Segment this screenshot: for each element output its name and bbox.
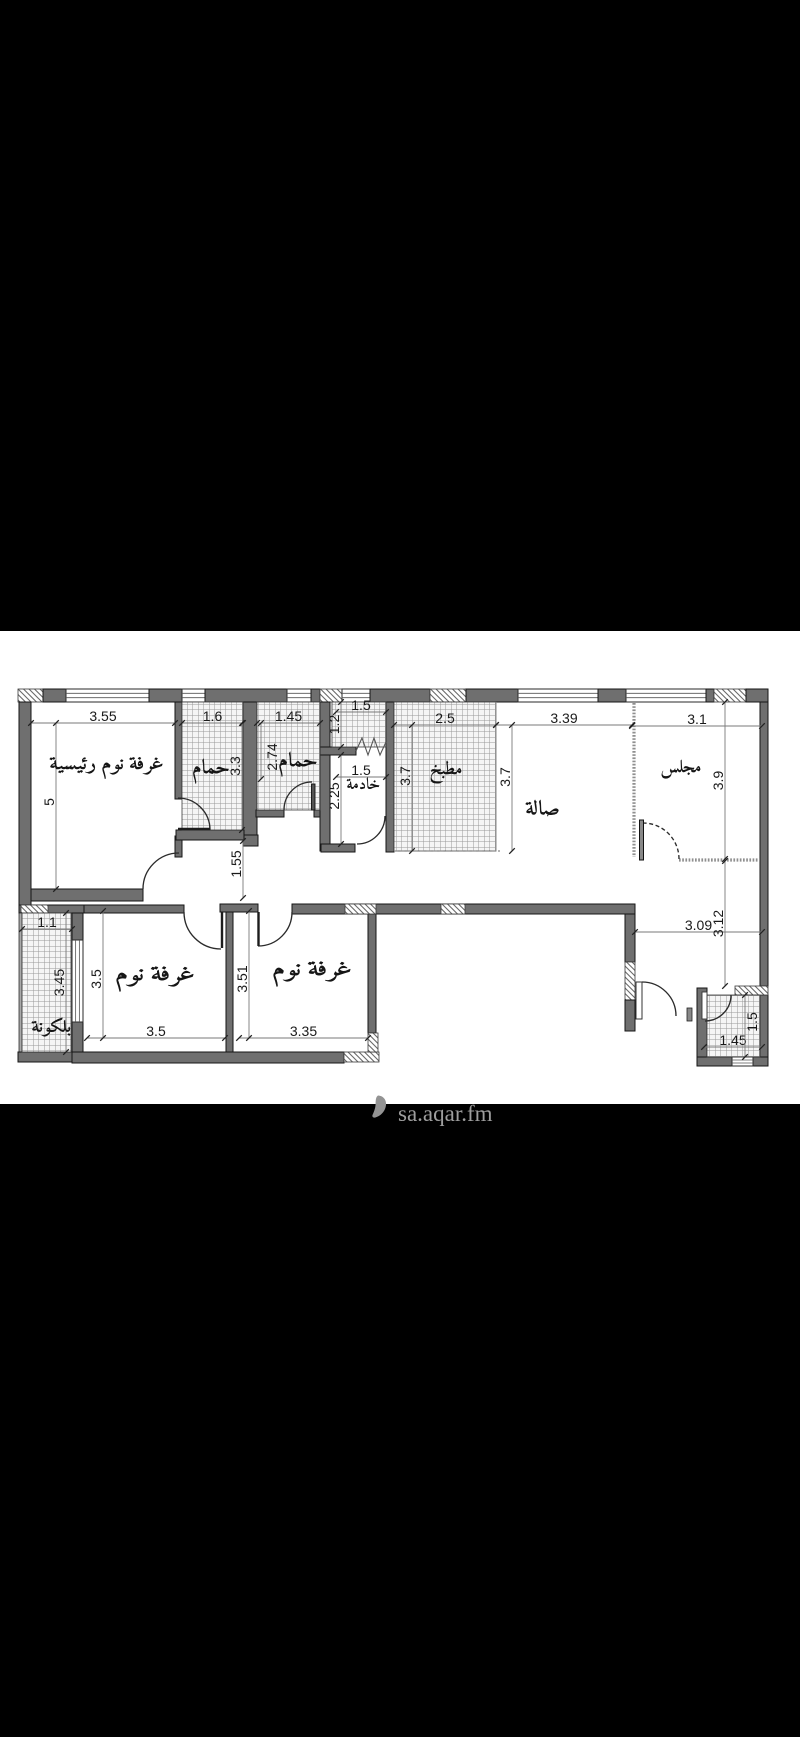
svg-text:1.45: 1.45 <box>275 708 302 724</box>
svg-text:1.5: 1.5 <box>744 1012 760 1032</box>
svg-text:2.5: 2.5 <box>435 710 455 726</box>
svg-text:3.7: 3.7 <box>397 766 413 786</box>
svg-text:3.7: 3.7 <box>497 767 513 787</box>
svg-text:1.2: 1.2 <box>326 715 342 735</box>
svg-text:3.1: 3.1 <box>687 711 707 727</box>
svg-text:3.09: 3.09 <box>685 917 712 933</box>
svg-text:1.55: 1.55 <box>228 850 244 877</box>
svg-text:1.6: 1.6 <box>203 708 223 724</box>
svg-text:1.45: 1.45 <box>719 1032 746 1048</box>
svg-text:1.1: 1.1 <box>37 914 57 930</box>
svg-text:3.5: 3.5 <box>88 969 104 989</box>
svg-text:3.55: 3.55 <box>89 708 116 724</box>
svg-text:3.9: 3.9 <box>710 771 726 791</box>
svg-text:3.39: 3.39 <box>550 710 577 726</box>
svg-text:3.35: 3.35 <box>290 1023 317 1039</box>
svg-text:2.74: 2.74 <box>264 743 280 770</box>
svg-text:1.5: 1.5 <box>351 762 371 778</box>
svg-text:5: 5 <box>41 798 57 806</box>
svg-text:3.51: 3.51 <box>234 965 250 992</box>
svg-text:3.12: 3.12 <box>710 910 726 937</box>
svg-text:3.5: 3.5 <box>146 1023 166 1039</box>
svg-text:3.3: 3.3 <box>227 756 243 776</box>
svg-text:3.45: 3.45 <box>51 969 67 996</box>
svg-text:2.25: 2.25 <box>326 782 342 809</box>
svg-text:1.5: 1.5 <box>351 697 371 713</box>
